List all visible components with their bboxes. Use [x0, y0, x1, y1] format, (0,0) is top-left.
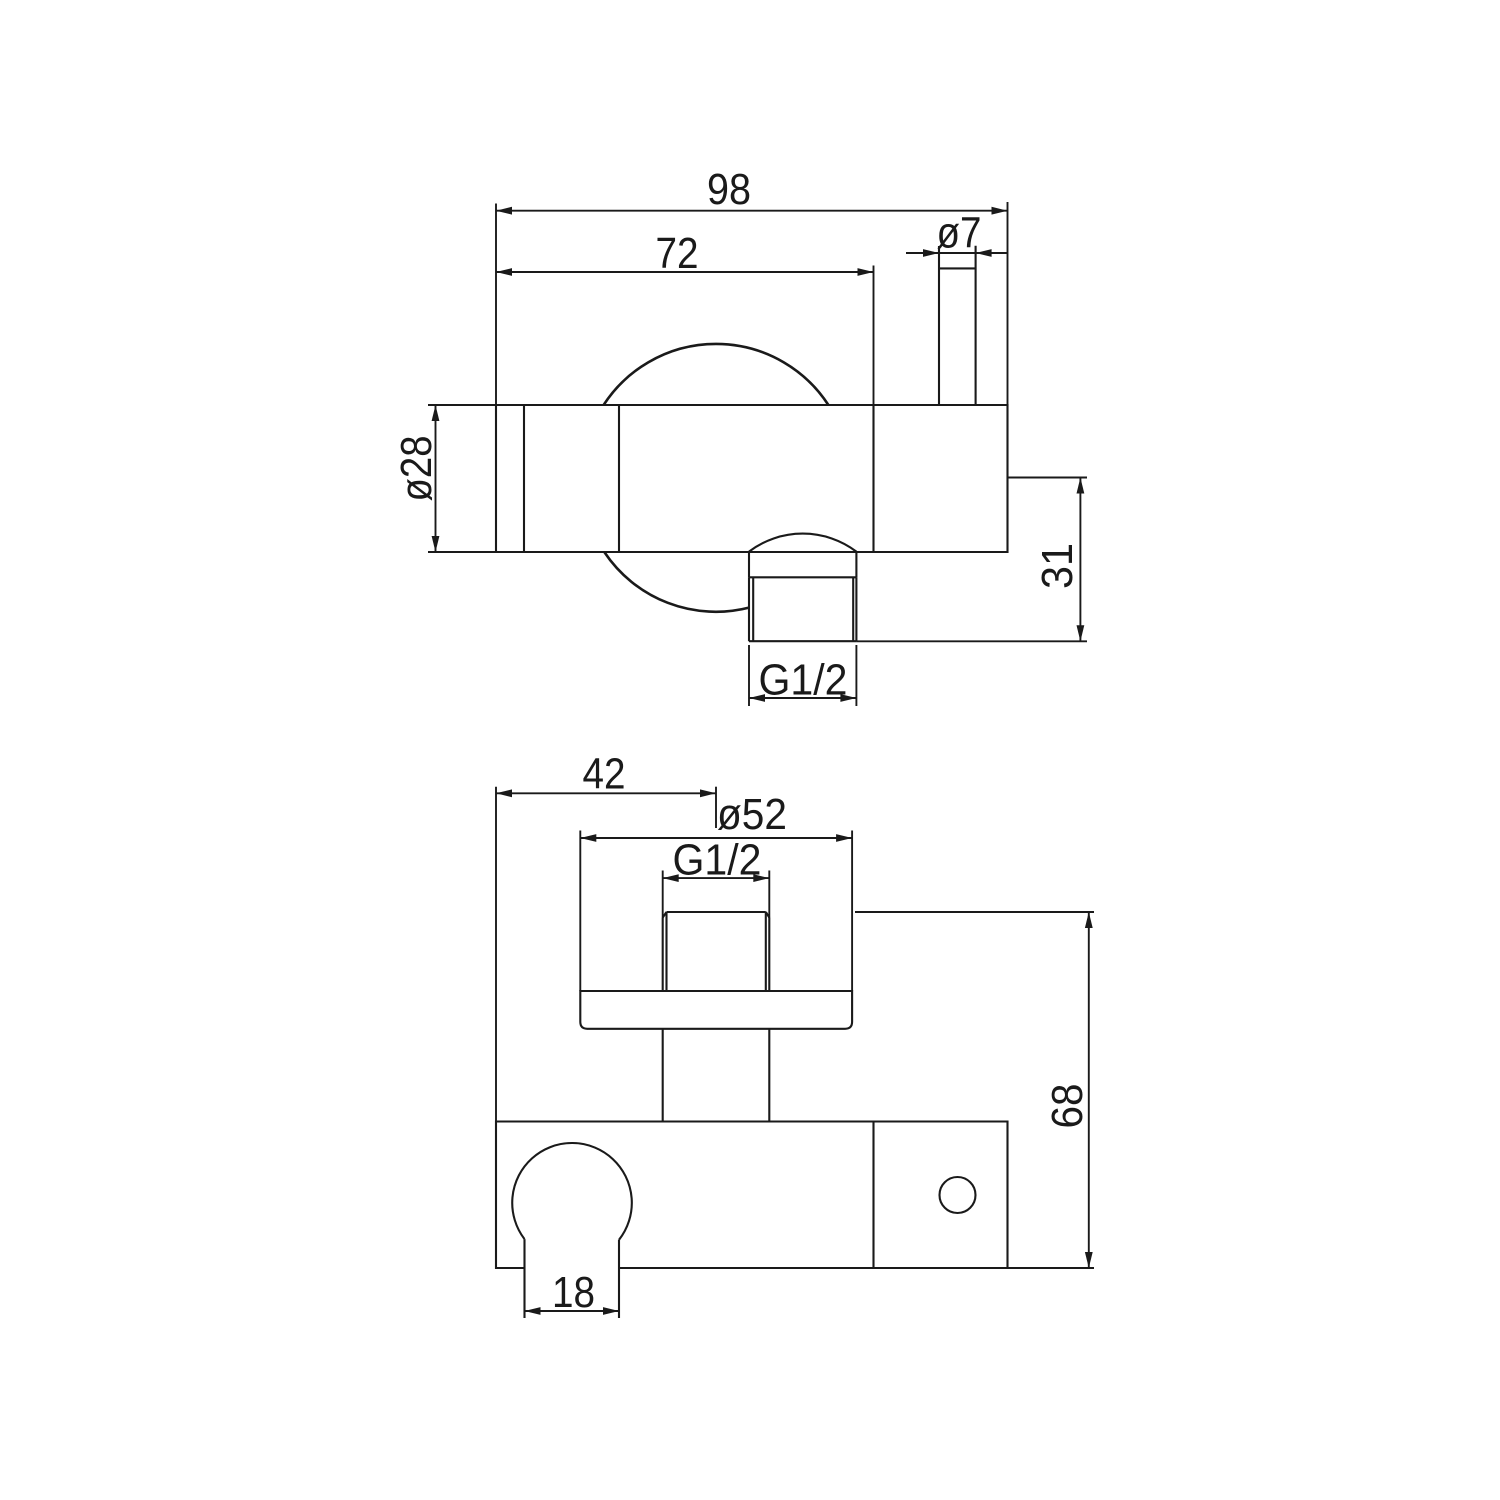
svg-text:72: 72: [656, 230, 699, 278]
svg-text:68: 68: [1044, 1084, 1092, 1129]
svg-text:18: 18: [552, 1269, 595, 1317]
svg-text:ø28: ø28: [393, 436, 441, 502]
svg-text:42: 42: [583, 751, 626, 799]
svg-text:ø52: ø52: [717, 791, 787, 839]
svg-text:31: 31: [1034, 543, 1082, 589]
svg-text:G1/2: G1/2: [673, 836, 762, 884]
svg-text:G1/2: G1/2: [759, 657, 848, 705]
svg-text:ø7: ø7: [937, 210, 982, 258]
svg-text:98: 98: [707, 166, 751, 214]
